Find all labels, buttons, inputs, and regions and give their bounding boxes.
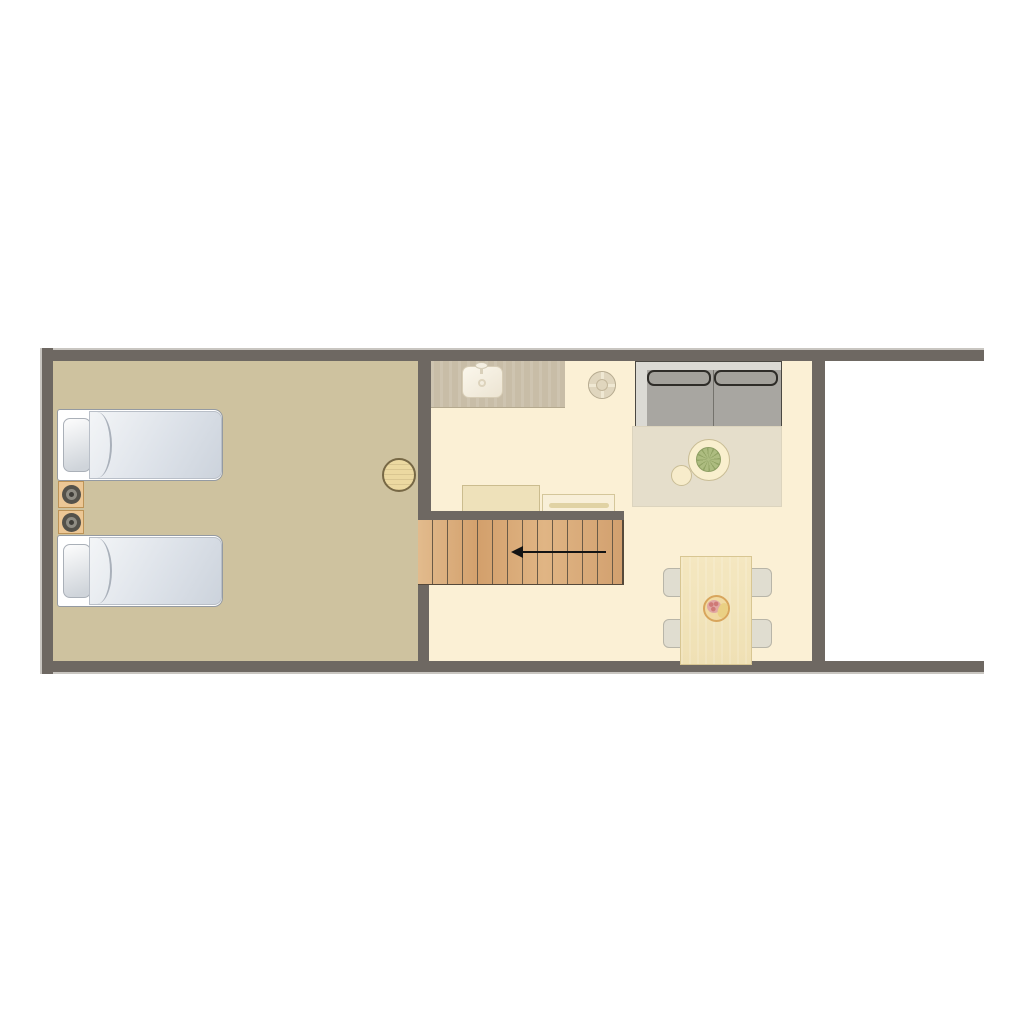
bedroom-partition-wall bbox=[418, 361, 431, 512]
duvet-fold-line bbox=[97, 412, 112, 478]
stair-direction-arrow bbox=[522, 551, 606, 553]
light-hub bbox=[596, 379, 608, 391]
lamp-center bbox=[69, 492, 74, 497]
pouf bbox=[671, 465, 692, 486]
pillow bbox=[63, 418, 91, 472]
ceiling-light bbox=[588, 371, 616, 399]
lamp-shade bbox=[66, 517, 77, 528]
low-cabinet bbox=[462, 485, 540, 513]
duvet bbox=[89, 411, 222, 479]
outer-wall-bottom bbox=[40, 661, 984, 674]
sofa-back-cushion bbox=[714, 370, 778, 386]
fruit-bowl-icon bbox=[703, 595, 730, 622]
sofa-back-cushion bbox=[647, 370, 711, 386]
pillow bbox=[63, 544, 91, 598]
faucet-spout bbox=[480, 368, 483, 374]
nightstand-2 bbox=[58, 510, 84, 534]
lamp-icon bbox=[62, 513, 81, 532]
lamp-icon bbox=[62, 485, 81, 504]
stair-direction-arrow-head bbox=[511, 546, 523, 558]
sink-drain-icon bbox=[478, 379, 486, 387]
console-handle bbox=[549, 503, 609, 508]
single-bed-1 bbox=[57, 409, 223, 481]
single-bed-2 bbox=[57, 535, 223, 607]
bedroom-floor bbox=[53, 361, 418, 661]
stair-head-wall bbox=[418, 511, 624, 520]
duvet bbox=[89, 537, 222, 605]
duvet-fold-line bbox=[97, 538, 112, 604]
lamp-shade bbox=[66, 489, 77, 500]
outer-wall-left bbox=[40, 348, 53, 674]
plant-icon bbox=[696, 447, 721, 472]
lamp-center bbox=[69, 520, 74, 525]
round-stool bbox=[382, 458, 416, 492]
sofa bbox=[635, 361, 782, 427]
stair-foot-wall bbox=[418, 585, 429, 662]
right-partition-wall bbox=[812, 357, 825, 665]
outer-wall-top bbox=[40, 348, 984, 361]
nightstand-1 bbox=[58, 481, 84, 508]
